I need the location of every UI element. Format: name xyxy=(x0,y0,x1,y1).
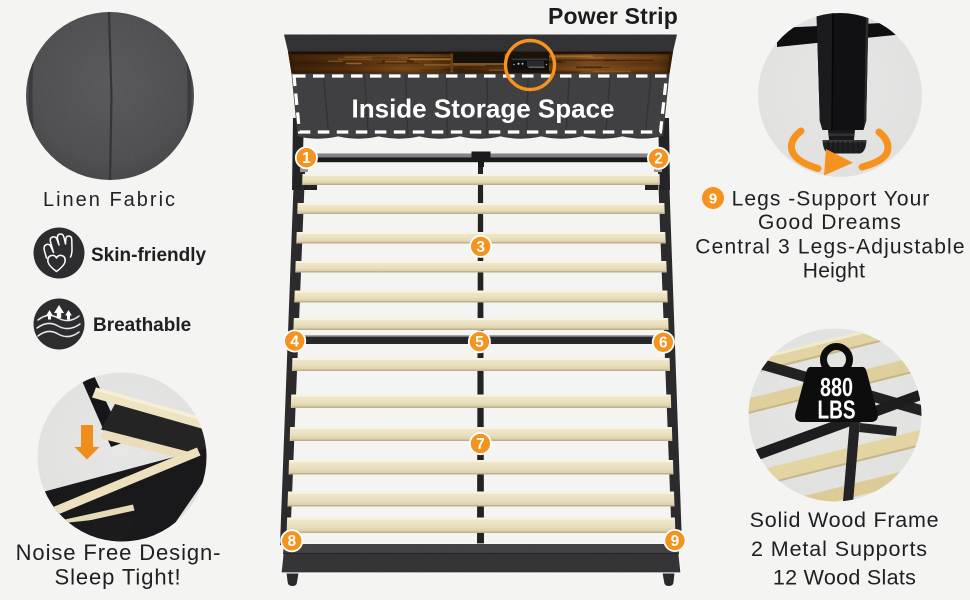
svg-text:Central 3 Legs-Adjustable: Central 3 Legs-Adjustable xyxy=(695,236,965,259)
svg-text:2 Metal Supports: 2 Metal Supports xyxy=(751,537,928,561)
svg-text:Power Strip: Power Strip xyxy=(548,3,678,29)
svg-text:9: 9 xyxy=(671,533,680,550)
svg-text:5: 5 xyxy=(475,334,484,351)
svg-text:LBS: LBS xyxy=(818,395,856,425)
svg-text:Noise Free Design-: Noise Free Design- xyxy=(16,540,222,565)
svg-text:8: 8 xyxy=(287,533,296,550)
svg-text:6: 6 xyxy=(659,335,668,352)
svg-text:Solid Wood Frame: Solid Wood Frame xyxy=(750,508,940,532)
svg-text:7: 7 xyxy=(476,436,485,453)
svg-text:Skin-friendly: Skin-friendly xyxy=(91,245,207,266)
svg-text:Linen Fabric: Linen Fabric xyxy=(43,189,177,211)
svg-text:Good Dreams: Good Dreams xyxy=(758,211,902,234)
svg-text:4: 4 xyxy=(290,333,299,350)
svg-text:2: 2 xyxy=(654,151,663,168)
svg-text:Sleep Tight!: Sleep Tight! xyxy=(55,565,182,590)
svg-text:Legs -Support Your: Legs -Support Your xyxy=(732,188,931,211)
svg-text:Height: Height xyxy=(803,260,866,283)
svg-text:12 Wood Slats: 12 Wood Slats xyxy=(773,566,916,590)
svg-text:Breathable: Breathable xyxy=(93,315,191,336)
svg-text:Inside Storage Space: Inside Storage Space xyxy=(352,94,615,124)
svg-text:1: 1 xyxy=(302,150,311,167)
svg-text:3: 3 xyxy=(476,239,485,256)
svg-text:9: 9 xyxy=(709,190,717,207)
